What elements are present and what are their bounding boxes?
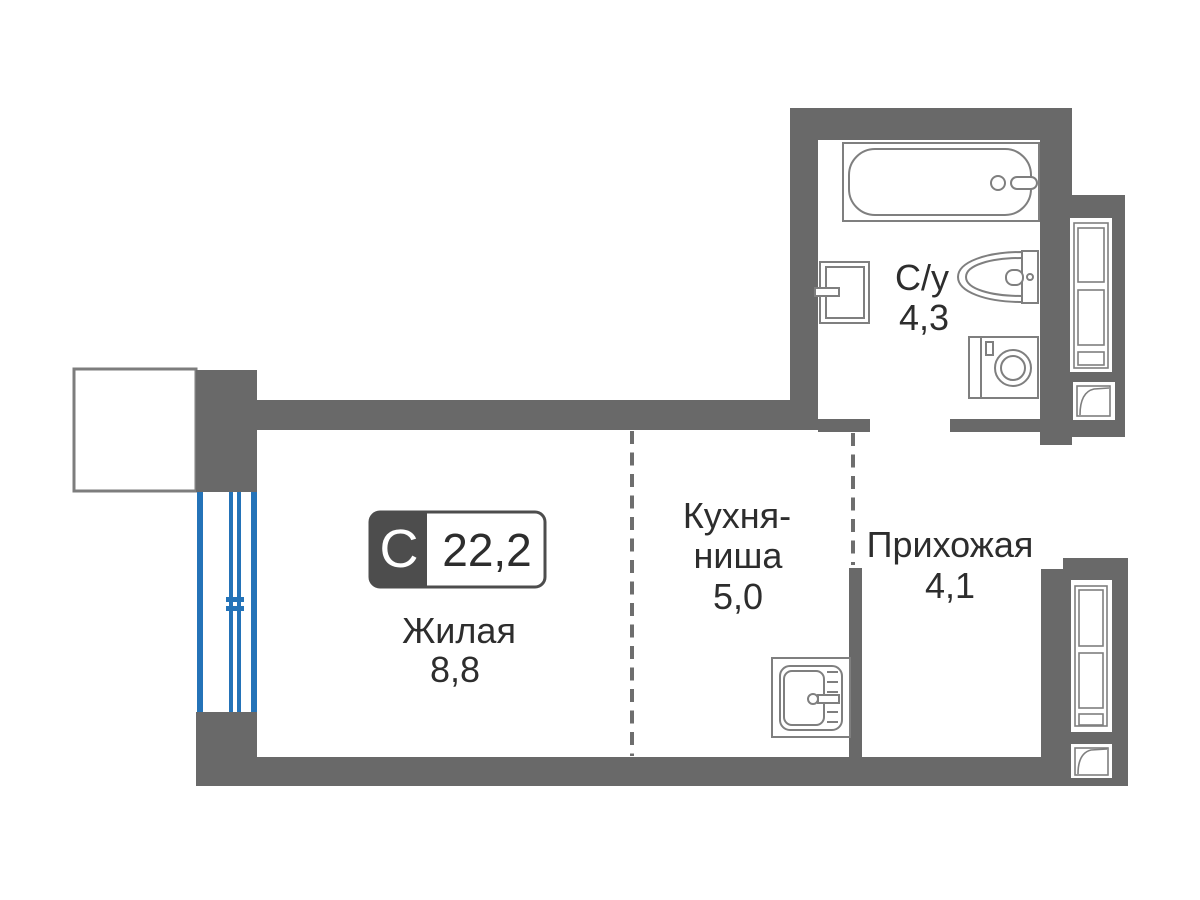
window-frame-line <box>197 492 203 712</box>
kitchen-faucet-base <box>808 694 818 704</box>
panel-pane <box>1078 352 1104 365</box>
wall-segment <box>790 108 818 430</box>
kitchen-label-line1: Кухня- <box>683 495 791 536</box>
panel-pane <box>1079 590 1103 646</box>
wall-segment <box>257 400 818 430</box>
wall-segment <box>790 108 1072 140</box>
bathroom-sink <box>815 262 869 323</box>
window-frame-line <box>251 492 257 712</box>
hallway-area: 4,1 <box>925 565 975 606</box>
living-label: Жилая <box>402 610 516 651</box>
total-area-value: 22,2 <box>442 524 532 576</box>
panel-pane <box>1078 228 1104 282</box>
kitchen-faucet-handle <box>818 695 839 703</box>
toilet <box>958 251 1038 303</box>
wall-segment <box>257 757 1041 786</box>
bathtub <box>843 143 1039 221</box>
plan-badge: С 22,2 <box>370 512 545 587</box>
wall-segment <box>196 712 257 786</box>
kitchen-label-line2: ниша <box>694 535 784 576</box>
floor-plan: С 22,2 С/у 4,3 Кухня- ниша 5,0 Прихожая … <box>0 0 1200 900</box>
balcony-window <box>197 492 257 712</box>
apartment-type-letter: С <box>380 519 419 579</box>
bathtub-faucet <box>1011 177 1037 189</box>
shaft-vent-top <box>1073 382 1115 420</box>
hallway-label: Прихожая <box>867 524 1034 565</box>
kitchen-area: 5,0 <box>713 576 763 617</box>
floor-plan-canvas: С 22,2 С/у 4,3 Кухня- ниша 5,0 Прихожая … <box>0 0 1200 900</box>
wall-segment <box>818 419 870 432</box>
toilet-flush-button <box>1027 274 1033 280</box>
bathroom-label: С/у <box>895 257 949 298</box>
wall-segment <box>1041 569 1063 786</box>
shaft-window-top <box>1070 218 1112 372</box>
panel-pane <box>1078 290 1104 345</box>
balcony-outline <box>74 369 196 491</box>
sink-tap <box>815 288 839 296</box>
panel-pane <box>1079 714 1103 725</box>
wall-segment <box>196 370 257 492</box>
washer-door-inner <box>1001 356 1025 380</box>
bathroom-area: 4,3 <box>899 297 949 338</box>
living-area: 8,8 <box>430 649 480 690</box>
washer-button <box>986 342 993 355</box>
bathtub-drain <box>991 176 1005 190</box>
shaft-vent-bottom <box>1071 744 1112 778</box>
panel-pane <box>1079 653 1103 708</box>
window-mullion <box>226 597 244 602</box>
toilet-seat-hinge <box>1006 270 1023 285</box>
washing-machine <box>969 337 1038 398</box>
window-mullion <box>226 606 244 611</box>
kitchen-sink <box>772 658 850 737</box>
wall-segment <box>950 419 1040 432</box>
shaft-window-bottom <box>1071 580 1112 732</box>
